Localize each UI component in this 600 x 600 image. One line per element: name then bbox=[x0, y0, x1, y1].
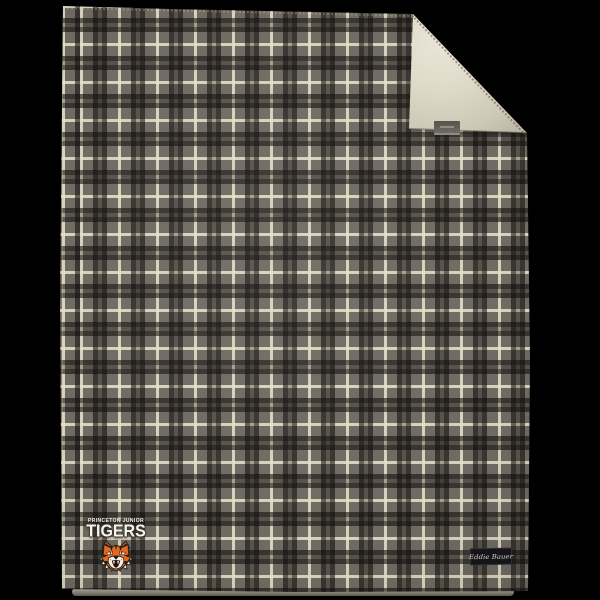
logo-team-name: TIGERS bbox=[81, 523, 151, 539]
fold-tag bbox=[434, 121, 460, 135]
fold-tag-logo bbox=[440, 126, 454, 128]
product-image: Eddie Bauer PRINCETON JUNIOR TIGERS bbox=[0, 0, 600, 600]
tiger-head-icon bbox=[98, 540, 134, 573]
brand-tag: Eddie Bauer bbox=[470, 548, 512, 566]
team-logo: PRINCETON JUNIOR TIGERS bbox=[81, 518, 151, 573]
brand-tag-label: Eddie Bauer bbox=[469, 553, 513, 561]
